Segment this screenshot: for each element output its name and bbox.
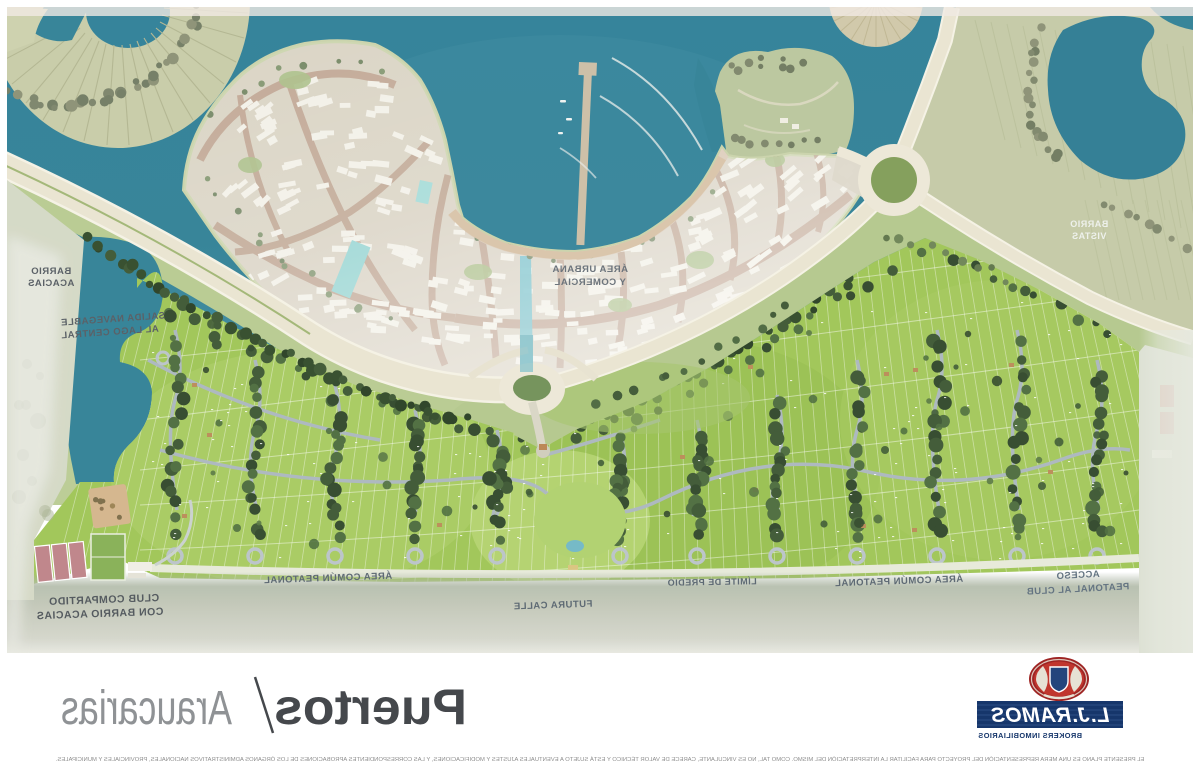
svg-text:Y COMERCIAL: Y COMERCIAL (554, 277, 626, 288)
svg-text:BARRIO: BARRIO (1070, 219, 1109, 229)
svg-text:L.J.RAMOS: L.J.RAMOS (991, 704, 1110, 727)
svg-text:Araucarias: Araucarias (61, 682, 232, 735)
svg-text:ACCESO: ACCESO (1056, 569, 1100, 582)
svg-text:LÍMITE DE PREDIO: LÍMITE DE PREDIO (667, 576, 757, 588)
svg-text:ACACIAS: ACACIAS (28, 278, 75, 289)
svg-text:BARRIO: BARRIO (31, 266, 71, 277)
svg-text:BROKERS INMOBILIARIOS: BROKERS INMOBILIARIOS (978, 731, 1082, 740)
svg-text:Puertos: Puertos (274, 679, 467, 735)
svg-text:EL PRESENTE PLANO ES UNA MERA: EL PRESENTE PLANO ES UNA MERA REPRESENTA… (55, 756, 1144, 763)
svg-text:ÁREA URBANA: ÁREA URBANA (552, 264, 628, 275)
svg-text:VISTAS: VISTAS (1072, 231, 1107, 241)
